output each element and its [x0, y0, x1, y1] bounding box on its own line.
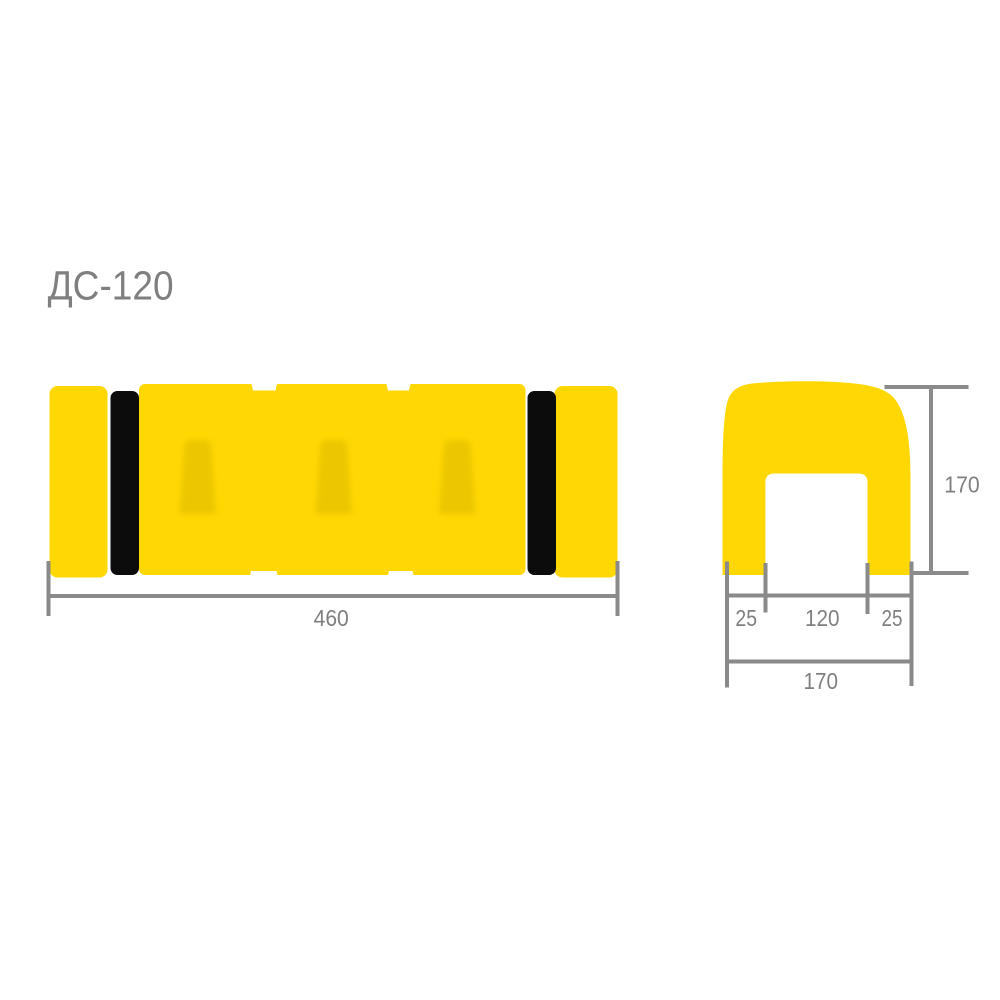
svg-text:170: 170 [804, 668, 839, 694]
svg-text:25: 25 [882, 605, 903, 631]
svg-text:460: 460 [314, 605, 349, 631]
svg-text:120: 120 [805, 605, 840, 631]
svg-text:25: 25 [735, 605, 757, 631]
svg-text:170: 170 [944, 472, 979, 498]
svg-text:ДС-120: ДС-120 [48, 263, 174, 309]
